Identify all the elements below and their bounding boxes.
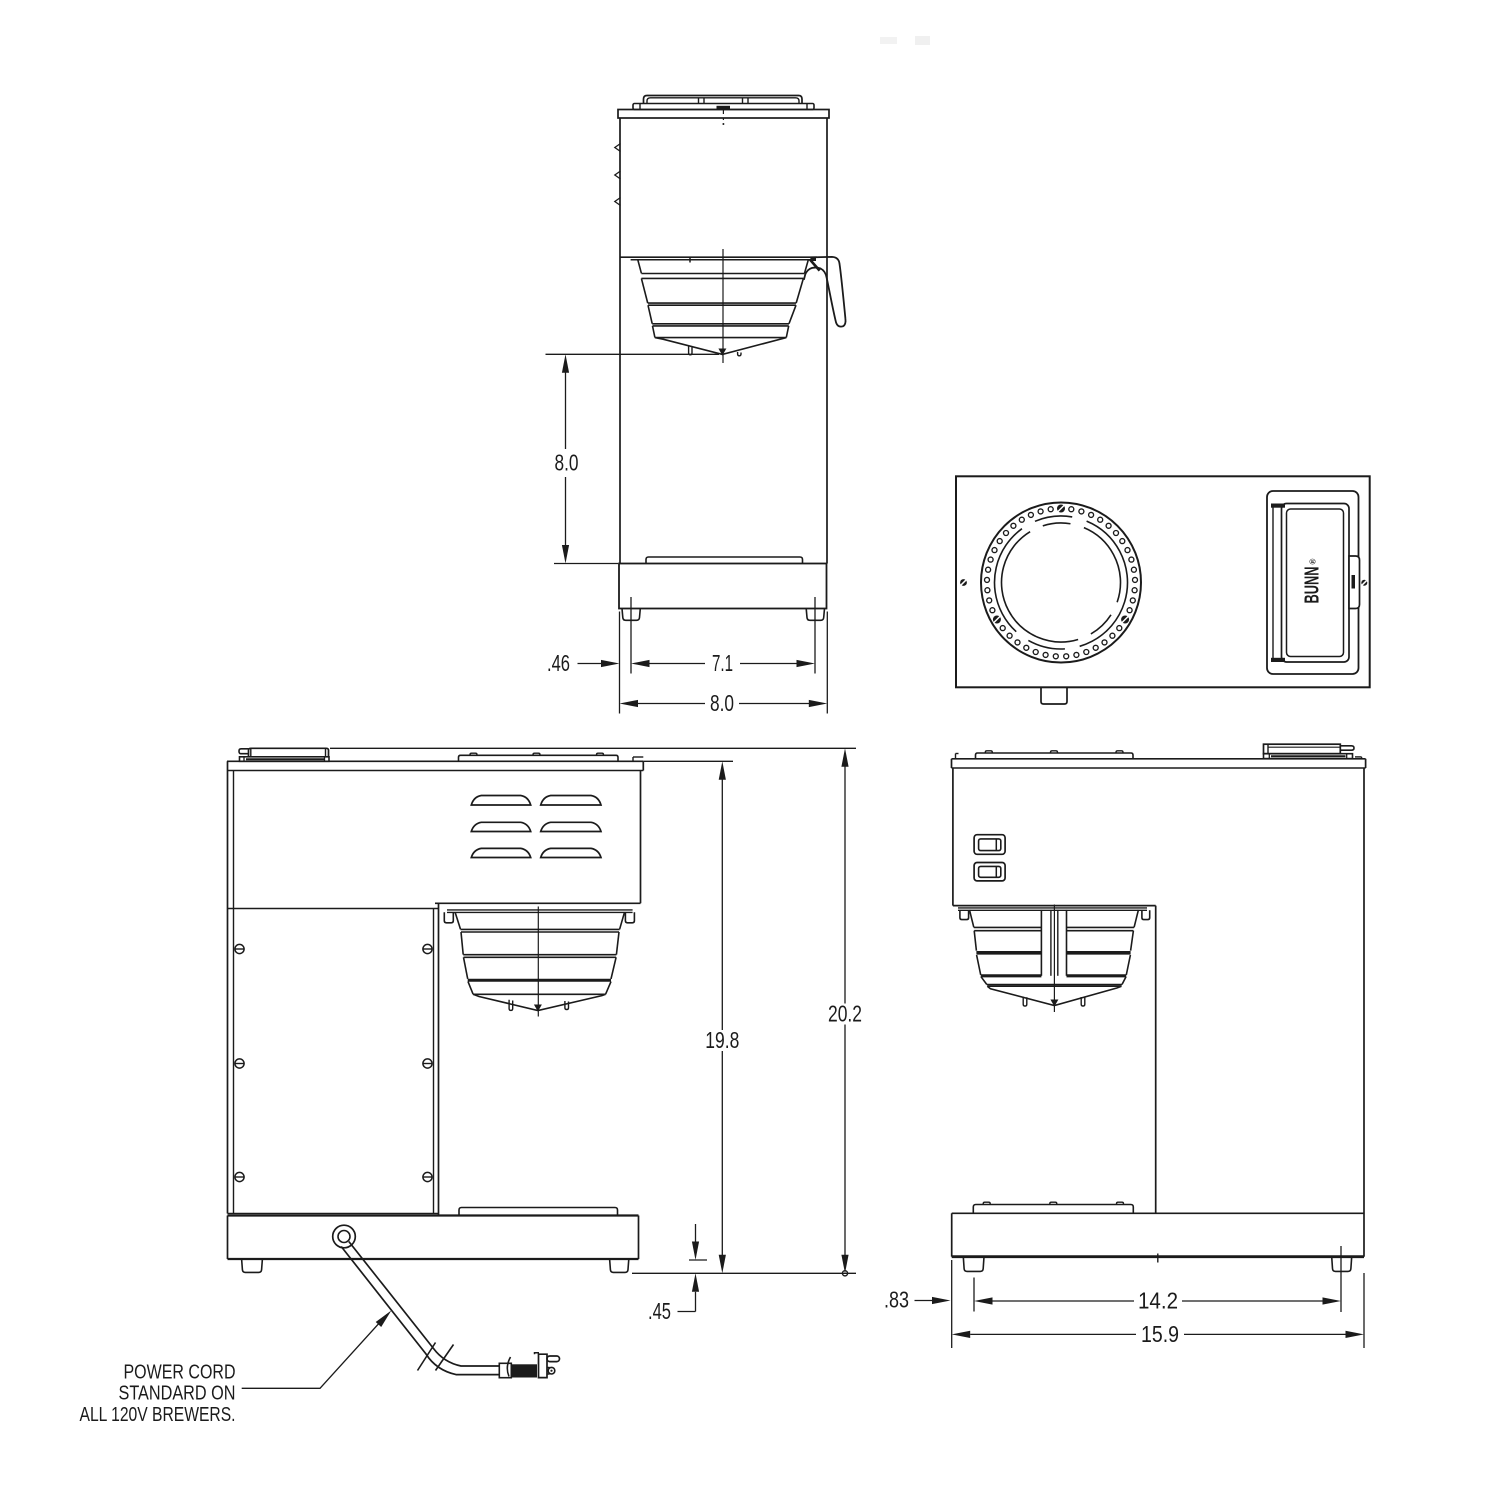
svg-text:8.0: 8.0 [710,690,734,716]
svg-text:7.1: 7.1 [712,650,733,676]
svg-text:.46: .46 [547,650,570,676]
svg-text:8.0: 8.0 [555,450,579,476]
svg-text:®: ® [1309,559,1318,565]
svg-text:15.9: 15.9 [1141,1321,1179,1347]
svg-text:ALL 120V BREWERS.: ALL 120V BREWERS. [80,1404,236,1426]
svg-text:14.2: 14.2 [1138,1288,1178,1314]
svg-text:STANDARD ON: STANDARD ON [119,1383,236,1405]
svg-text:.45: .45 [648,1298,671,1324]
svg-text:.83: .83 [884,1287,909,1313]
svg-text:19.8: 19.8 [705,1027,739,1053]
svg-text:BUNN: BUNN [1302,567,1324,604]
svg-text:20.2: 20.2 [828,1001,862,1027]
svg-text:POWER CORD: POWER CORD [124,1362,236,1384]
